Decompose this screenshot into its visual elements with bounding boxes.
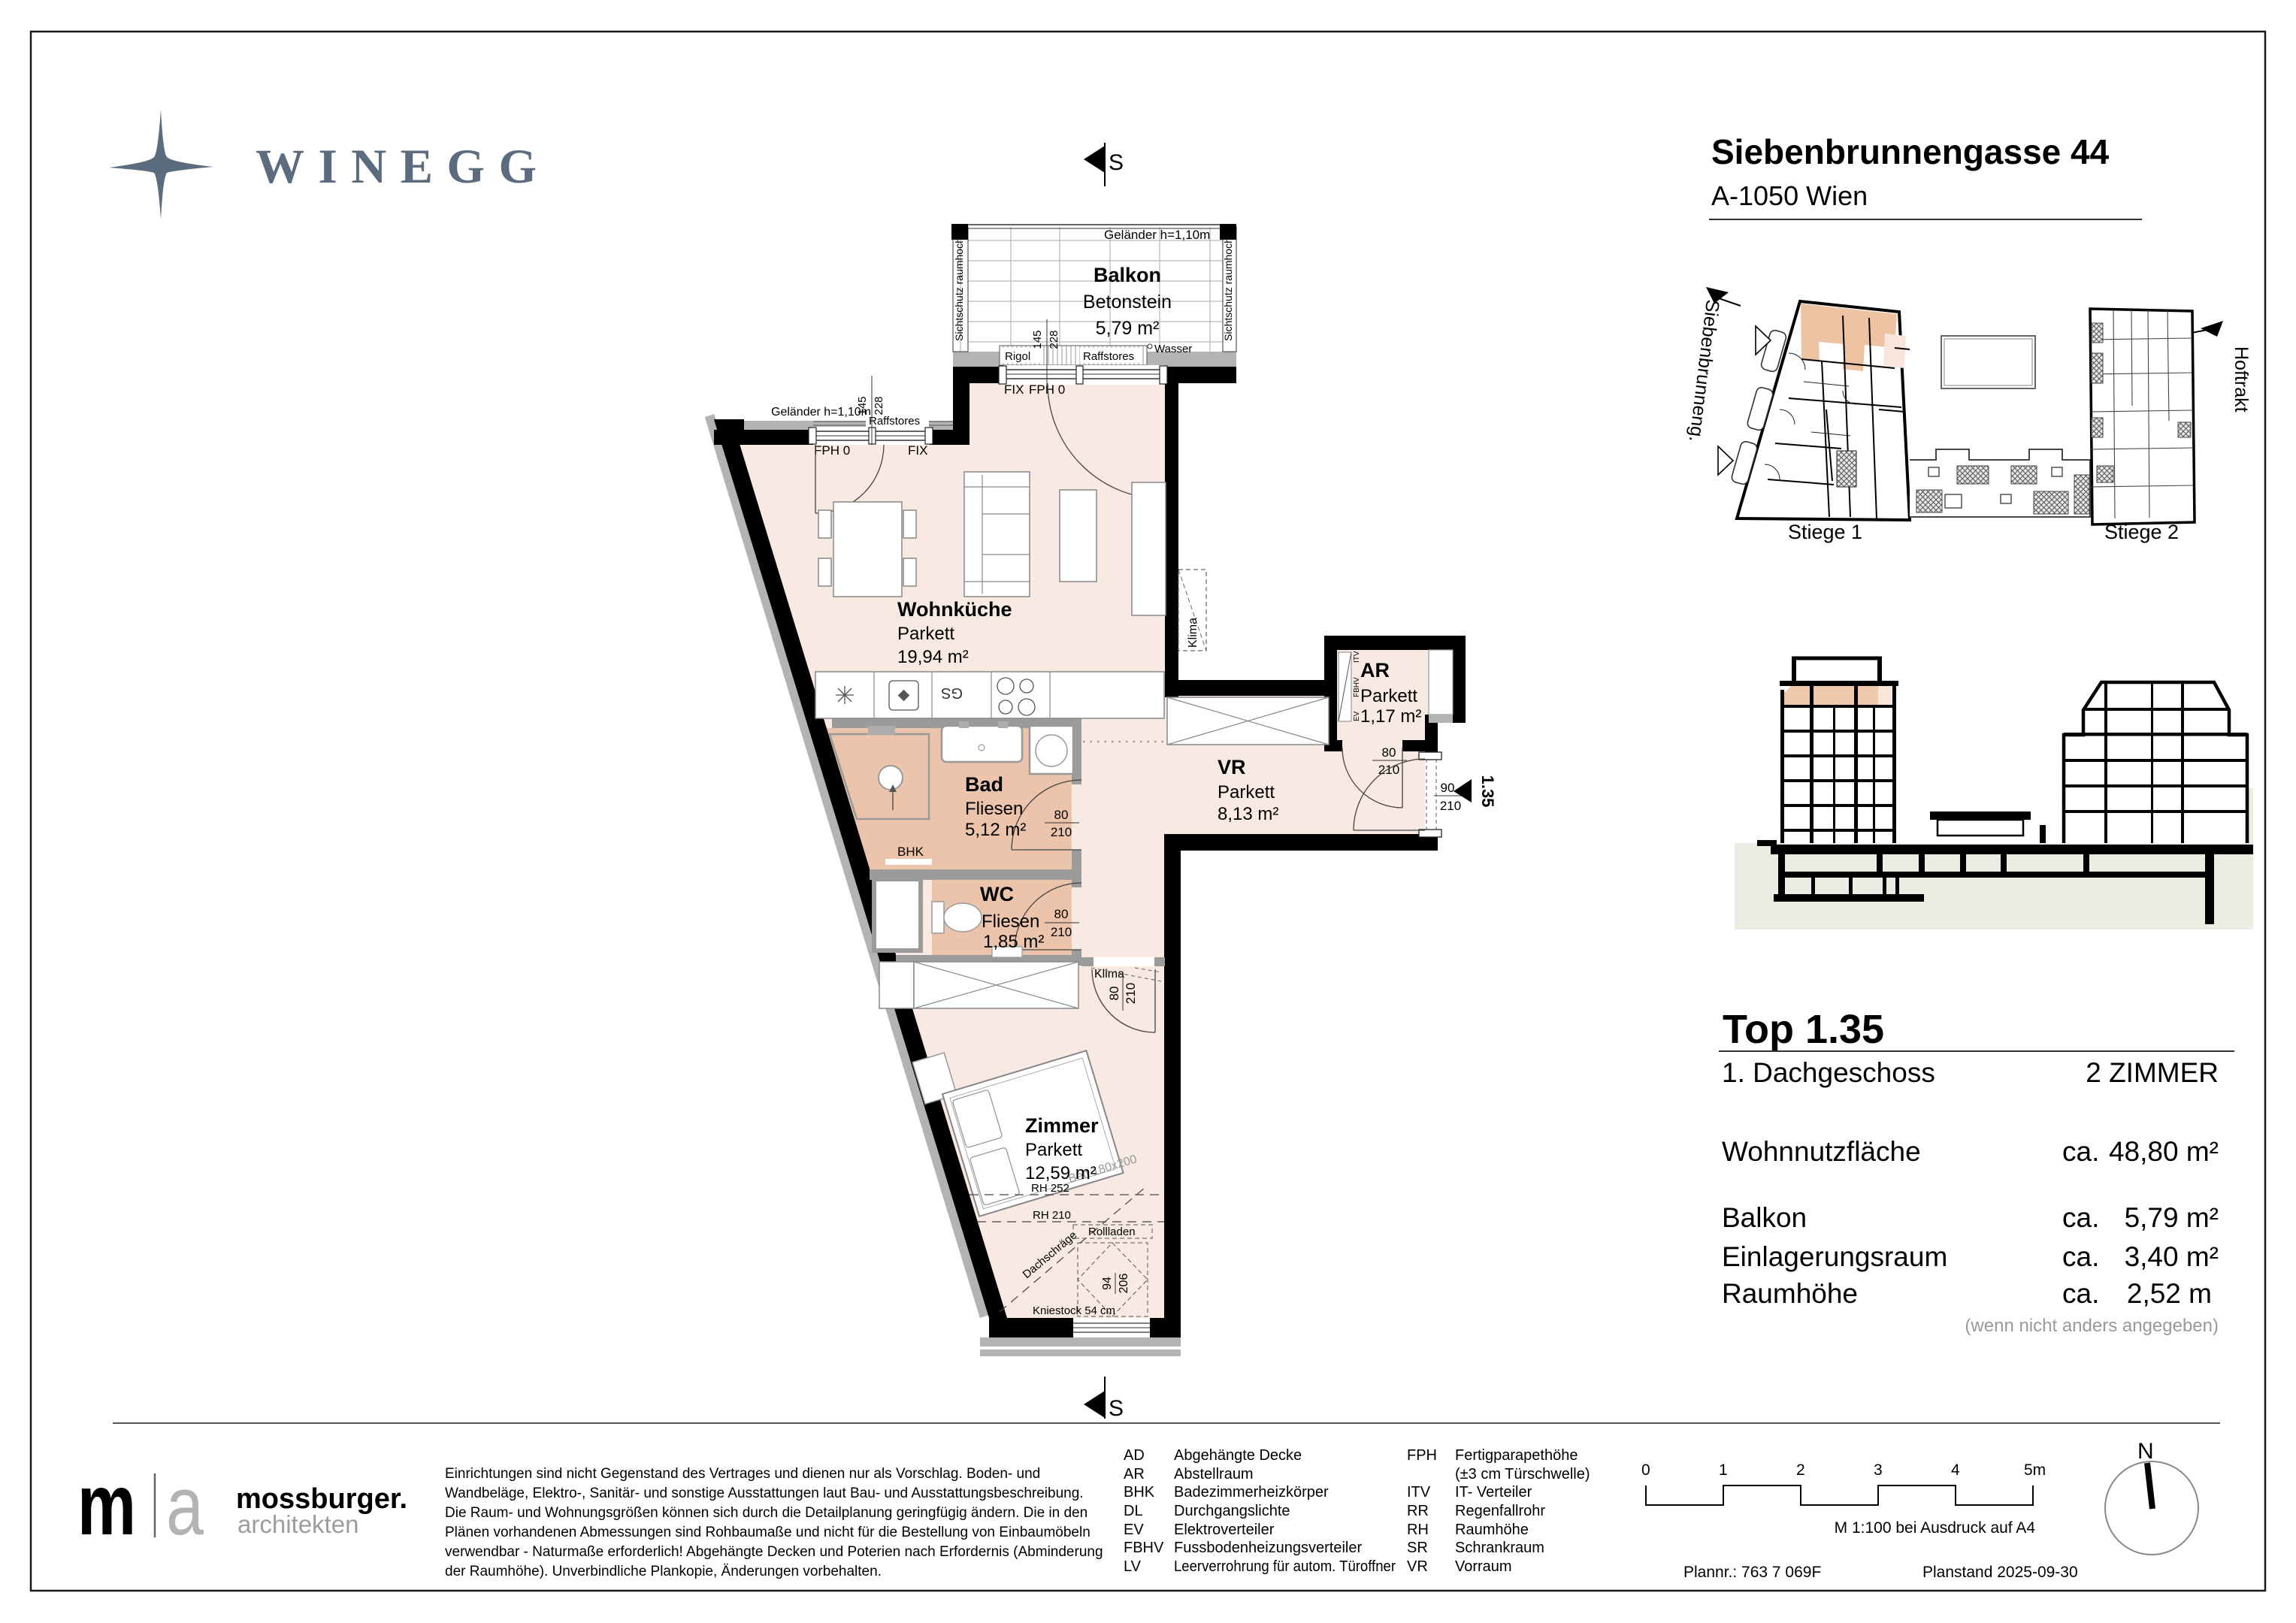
svg-text:206: 206	[1118, 1274, 1130, 1294]
svg-text:Parkett: Parkett	[1025, 1140, 1082, 1160]
svg-text:FPH: FPH	[1407, 1447, 1437, 1464]
svg-text:Planstand 2025-09-30: Planstand 2025-09-30	[1922, 1564, 2078, 1581]
svg-text:5m: 5m	[2024, 1461, 2046, 1479]
svg-text:ca.: ca.	[2062, 1278, 2099, 1309]
svg-text:N: N	[2137, 1439, 2154, 1464]
svg-text:BHK: BHK	[897, 845, 924, 859]
svg-text:ITV: ITV	[1407, 1484, 1431, 1501]
svg-text:ca.: ca.	[2062, 1241, 2099, 1272]
svg-text:Parkett: Parkett	[1360, 686, 1417, 706]
svg-text:FBHV: FBHV	[1124, 1540, 1164, 1556]
svg-text:architekten: architekten	[237, 1510, 358, 1538]
svg-text:Wohnküche: Wohnküche	[897, 598, 1012, 621]
svg-text:1.35: 1.35	[1478, 775, 1497, 808]
svg-text:Die Raum- und Wohnungsgrößen k: Die Raum- und Wohnungsgrößen können sich…	[445, 1505, 1087, 1521]
svg-text:1: 1	[1719, 1461, 1728, 1479]
svg-text:0: 0	[1641, 1461, 1650, 1479]
svg-text:Leerverrohrung für autom. Türo: Leerverrohrung für autom. Türoffner	[1174, 1558, 1396, 1575]
svg-text:m: m	[77, 1457, 136, 1553]
svg-text:3: 3	[1874, 1461, 1883, 1479]
svg-text:FIX: FIX	[1004, 382, 1024, 397]
svg-text:80: 80	[1054, 907, 1069, 921]
svg-text:RR: RR	[1407, 1503, 1429, 1519]
svg-text:80: 80	[1054, 808, 1069, 822]
svg-text:3,40 m²: 3,40 m²	[2125, 1241, 2219, 1272]
svg-text:Bad: Bad	[965, 773, 1003, 796]
svg-text:AR: AR	[1360, 659, 1390, 682]
svg-text:1,17 m²: 1,17 m²	[1360, 706, 1421, 727]
svg-text:Einrichtungen sind nicht Gegen: Einrichtungen sind nicht Gegenstand des …	[445, 1466, 1040, 1482]
svg-text:Raumhöhe: Raumhöhe	[1455, 1522, 1529, 1538]
svg-text:Rigol: Rigol	[1005, 350, 1030, 363]
svg-text:Balkon: Balkon	[1722, 1202, 1807, 1233]
svg-text:S: S	[1109, 1396, 1124, 1421]
svg-text:Rollladen: Rollladen	[1088, 1226, 1136, 1238]
svg-text:Durchgangslichte: Durchgangslichte	[1174, 1503, 1290, 1519]
svg-text:Siebenbrunnengasse 44: Siebenbrunnengasse 44	[1711, 132, 2110, 171]
svg-text:SR: SR	[1407, 1540, 1428, 1556]
svg-text:EV: EV	[1124, 1522, 1144, 1538]
svg-text:Badezimmerheizkörper: Badezimmerheizkörper	[1174, 1484, 1329, 1501]
svg-text:WC: WC	[980, 883, 1014, 905]
svg-text:Plannr.: 763 7 069F: Plannr.: 763 7 069F	[1683, 1564, 1821, 1581]
svg-text:Abgehängte Decke: Abgehängte Decke	[1174, 1447, 1302, 1464]
svg-text:Stiege 2: Stiege 2	[2104, 521, 2179, 543]
svg-text:AR: AR	[1124, 1466, 1145, 1482]
svg-text:2 ZIMMER: 2 ZIMMER	[2086, 1057, 2219, 1088]
svg-text:FIX: FIX	[908, 443, 927, 458]
svg-text:Plänen vorhandenen Abmessungen: Plänen vorhandenen Abmessungen sind Rohb…	[445, 1525, 1091, 1540]
svg-text:LV: LV	[1124, 1558, 1142, 1575]
svg-text:2,52 m: 2,52 m	[2127, 1278, 2212, 1309]
svg-text:80: 80	[1107, 987, 1121, 1001]
svg-text:VR: VR	[1407, 1558, 1428, 1575]
svg-text:IT- Verteiler: IT- Verteiler	[1455, 1484, 1532, 1501]
svg-text:Fliesen: Fliesen	[965, 799, 1023, 819]
svg-text:19,94 m²: 19,94 m²	[897, 647, 969, 667]
svg-text:Betonstein: Betonstein	[1083, 292, 1172, 313]
svg-text:1. Dachgeschoss: 1. Dachgeschoss	[1722, 1057, 1935, 1088]
svg-text:Fussbodenheizungsverteiler: Fussbodenheizungsverteiler	[1174, 1540, 1362, 1556]
svg-text:AD: AD	[1124, 1447, 1145, 1464]
svg-text:Sichtschutz raumhoch: Sichtschutz raumhoch	[953, 237, 965, 341]
svg-text:Parkett: Parkett	[1218, 782, 1275, 802]
svg-text:Elektroverteiler: Elektroverteiler	[1174, 1522, 1275, 1538]
svg-text:Stiege 1: Stiege 1	[1788, 521, 1862, 543]
svg-text:210: 210	[1051, 825, 1072, 839]
svg-text:Top 1.35: Top 1.35	[1723, 1007, 1884, 1052]
svg-text:Regenfallrohr: Regenfallrohr	[1455, 1503, 1545, 1519]
svg-text:Fertigparapethöhe: Fertigparapethöhe	[1455, 1447, 1578, 1464]
svg-text:(±3 cm Türschwelle): (±3 cm Türschwelle)	[1455, 1466, 1590, 1482]
svg-text:Geländer h=1,10m: Geländer h=1,10m	[1104, 228, 1210, 242]
svg-text:210: 210	[1124, 983, 1138, 1004]
svg-text:DL: DL	[1124, 1503, 1143, 1519]
svg-text:FPH 0: FPH 0	[814, 443, 850, 458]
svg-text:48,80 m²: 48,80 m²	[2109, 1136, 2219, 1167]
svg-text:1,85 m²: 1,85 m²	[983, 932, 1044, 952]
svg-text:12,59 m²: 12,59 m²	[1025, 1163, 1097, 1183]
svg-text:Wohnnutzfläche: Wohnnutzfläche	[1722, 1136, 1921, 1167]
svg-text:Schrankraum: Schrankraum	[1455, 1540, 1544, 1556]
svg-text:Klima: Klima	[1094, 968, 1124, 981]
svg-text:M 1:100 bei Ausdruck auf A4: M 1:100 bei Ausdruck auf A4	[1835, 1519, 2036, 1537]
svg-text:ca.: ca.	[2062, 1202, 2099, 1233]
svg-text:Wandbeläge, Elektro-, Sanitär-: Wandbeläge, Elektro-, Sanitär- und sonst…	[445, 1485, 1084, 1501]
svg-text:Raffstores: Raffstores	[1083, 350, 1134, 363]
svg-text:RH: RH	[1407, 1522, 1429, 1538]
svg-text:BHK: BHK	[1124, 1484, 1155, 1501]
svg-text:145: 145	[856, 396, 869, 415]
svg-text:228: 228	[873, 396, 885, 415]
svg-text:80: 80	[1382, 745, 1396, 760]
svg-text:5,12 m²: 5,12 m²	[965, 820, 1026, 840]
svg-text:Siebenbrunneng.: Siebenbrunneng.	[1685, 298, 1723, 443]
svg-text:verwendbar - Naturmaße erforde: verwendbar - Naturmaße erforderlich! Abg…	[445, 1544, 1103, 1560]
svg-text:Raffstores: Raffstores	[869, 415, 920, 428]
svg-text:a: a	[166, 1460, 204, 1552]
svg-text:8,13 m²: 8,13 m²	[1218, 804, 1278, 824]
svg-text:VR: VR	[1218, 756, 1246, 778]
svg-text:GS: GS	[941, 685, 963, 701]
svg-text:Zimmer: Zimmer	[1025, 1114, 1099, 1137]
svg-text:Fliesen: Fliesen	[982, 911, 1039, 932]
svg-text:5,79 m²: 5,79 m²	[2125, 1202, 2219, 1233]
svg-text:5,79 m²: 5,79 m²	[1096, 318, 1160, 339]
svg-text:145: 145	[1031, 330, 1044, 349]
svg-text:WINEGG: WINEGG	[256, 140, 544, 194]
svg-text:Hoftrakt: Hoftrakt	[2231, 346, 2252, 413]
svg-text:Kniestock 54 cm: Kniestock 54 cm	[1033, 1304, 1115, 1317]
svg-text:Vorraum: Vorraum	[1455, 1558, 1512, 1575]
svg-text:210: 210	[1051, 925, 1072, 939]
svg-text:A-1050 Wien: A-1050 Wien	[1711, 180, 1868, 211]
svg-text:RH 252: RH 252	[1031, 1182, 1069, 1195]
svg-text:Wasser: Wasser	[1154, 343, 1192, 355]
svg-text:210: 210	[1440, 799, 1461, 813]
svg-text:(wenn nicht anders angegeben): (wenn nicht anders angegeben)	[1965, 1316, 2219, 1336]
svg-text:Sichtschutz raumhoch: Sichtschutz raumhoch	[1222, 237, 1234, 341]
svg-text:2: 2	[1796, 1461, 1805, 1479]
svg-text:S: S	[1109, 150, 1124, 175]
svg-text:Parkett: Parkett	[897, 624, 954, 644]
svg-text:94: 94	[1101, 1277, 1114, 1290]
svg-text:Balkon: Balkon	[1094, 264, 1161, 286]
svg-text:der Raumhöhe). Unverbindliche: der Raumhöhe). Unverbindliche Plankopie,…	[445, 1564, 882, 1579]
svg-text:90: 90	[1441, 781, 1455, 795]
svg-text:Raumhöhe: Raumhöhe	[1722, 1278, 1858, 1309]
svg-text:4: 4	[1951, 1461, 1960, 1479]
svg-text:228: 228	[1048, 330, 1060, 349]
svg-text:RH 210: RH 210	[1033, 1209, 1071, 1222]
svg-text:Abstellraum: Abstellraum	[1174, 1466, 1254, 1482]
svg-text:ca.: ca.	[2062, 1136, 2099, 1167]
svg-text:Einlagerungsraum: Einlagerungsraum	[1722, 1241, 1947, 1272]
svg-text:Klima: Klima	[1187, 618, 1199, 648]
